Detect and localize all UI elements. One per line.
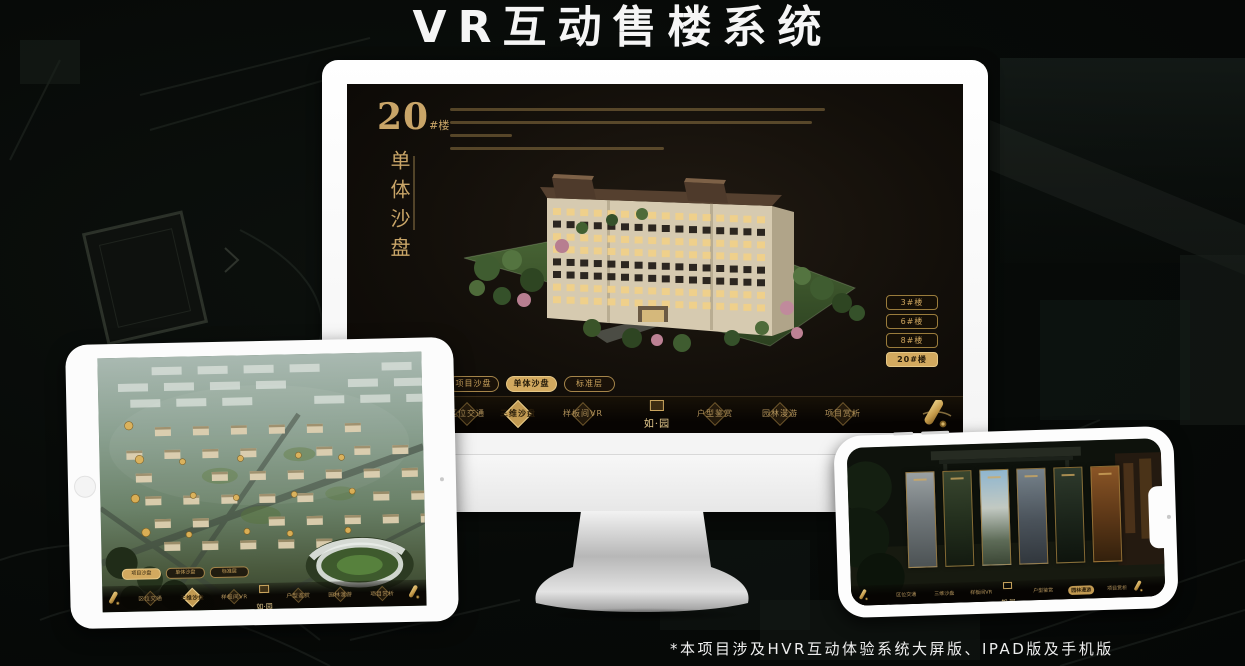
tab-single-sandbox[interactable]: 单体沙盘 (506, 376, 557, 392)
phone-nav-3d-sandbox[interactable]: 三维沙盘 (934, 590, 954, 598)
gallery-panel[interactable] (1053, 467, 1085, 564)
title-divider (413, 156, 415, 230)
tab-project-sandbox[interactable]: 项目沙盘 (448, 376, 499, 392)
scroll-menu-icon[interactable] (106, 588, 122, 610)
page-title: VR互动售楼系统 (0, 0, 1245, 56)
building-suffix: #楼 (429, 119, 449, 132)
gallery-panel[interactable] (979, 469, 1011, 566)
phone-nav-location[interactable]: 区位交通 (896, 591, 916, 599)
tablet: 项目沙盘 单体沙盘 标准层 区位交通 三维沙盘 样板间VR 如·园 户型鉴赏 园… (65, 337, 459, 629)
panel-label-marks (1062, 474, 1075, 476)
tablet-tab-single-sandbox[interactable]: 单体沙盘 (166, 567, 205, 579)
panel-label-marks (914, 478, 927, 480)
panel-label-marks (1025, 475, 1038, 477)
project-logo: 如·园 (1001, 582, 1016, 606)
phone: 区位交通 三维沙盘 样板间VR 如·园 户型鉴赏 园林漫游 项目赏析 (833, 426, 1179, 619)
scroll-menu-icon[interactable] (1132, 578, 1146, 596)
nav-item-3d-sandbox[interactable]: 三维沙盘 (500, 408, 536, 419)
tablet-tab-project-sandbox[interactable]: 项目沙盘 (122, 568, 161, 580)
camera-icon (440, 477, 444, 481)
section-title-vertical: 单体沙盘 (385, 150, 414, 266)
nav-item-showroom-vr[interactable]: 样板间VR (563, 408, 603, 419)
project-logo: 如·园 (644, 400, 670, 431)
notch (1148, 486, 1165, 548)
scroll-menu-icon[interactable] (919, 400, 953, 430)
gallery-panel[interactable] (905, 471, 937, 568)
gallery-panel[interactable] (1016, 468, 1048, 565)
intro-text-blurred (450, 108, 830, 160)
stage: VR互动售楼系统 20#楼 单体沙盘 (0, 0, 1245, 666)
scroll-menu-icon[interactable] (406, 582, 422, 604)
phone-screen: 区位交通 三维沙盘 样板间VR 如·园 户型鉴赏 园林漫游 项目赏析 (847, 438, 1166, 606)
tablet-tab-standard-floor[interactable]: 标准层 (210, 566, 249, 578)
tablet-nav-unit-plans[interactable]: 户型鉴赏 (286, 591, 310, 600)
floor-button-3[interactable]: 3#楼 (886, 295, 938, 310)
seal-icon (1003, 582, 1012, 589)
nav-item-unit-plans[interactable]: 户型鉴赏 (697, 408, 733, 419)
phone-nav-showroom-vr[interactable]: 样板间VR (970, 588, 992, 596)
stand-shadow (545, 608, 745, 622)
seal-icon (259, 585, 269, 593)
seal-icon (650, 400, 664, 411)
phone-nav-garden-roam[interactable]: 园林漫游 (1068, 585, 1094, 595)
project-logo: 如·园 (256, 585, 273, 613)
tablet-nav-showroom-vr[interactable]: 样板间VR (221, 592, 248, 601)
view-tab-group: 项目沙盘 单体沙盘 标准层 (448, 376, 615, 392)
tablet-nav-project-gallery[interactable]: 项目赏析 (370, 589, 394, 598)
phone-nav-project-gallery[interactable]: 项目赏析 (1107, 584, 1127, 592)
building-model[interactable] (442, 168, 882, 358)
scroll-menu-icon[interactable] (857, 586, 871, 604)
footnote: *本项目涉及HVR互动体验系统大屏版、IPAD版及手机版 (670, 638, 1114, 659)
tablet-screen: 项目沙盘 单体沙盘 标准层 区位交通 三维沙盘 样板间VR 如·园 户型鉴赏 园… (97, 352, 426, 613)
tablet-nav-3d-sandbox[interactable]: 三维沙盘 (180, 593, 204, 602)
gallery-panel[interactable] (1090, 465, 1122, 562)
floor-button-group: 3#楼 6#楼 8#楼 20#楼 (886, 295, 938, 371)
gallery-panel[interactable] (942, 470, 974, 567)
tablet-nav-location[interactable]: 区位交通 (138, 594, 162, 603)
building-title: 20#楼 (377, 96, 449, 138)
volume-button (921, 431, 949, 435)
nav-item-project-gallery[interactable]: 项目赏析 (825, 408, 861, 419)
floor-button-20[interactable]: 20#楼 (886, 352, 938, 367)
building-number: 20 (377, 96, 429, 138)
tablet-nav-garden-roam[interactable]: 园林漫游 (328, 590, 352, 599)
panel-label-marks (988, 476, 1001, 478)
phone-nav-unit-plans[interactable]: 户型鉴赏 (1033, 587, 1053, 595)
tab-standard-floor[interactable]: 标准层 (564, 376, 615, 392)
volume-button (893, 432, 913, 436)
home-button[interactable] (74, 475, 96, 497)
panel-label-marks (951, 477, 964, 479)
camera-icon (1167, 515, 1171, 519)
floor-button-8[interactable]: 8#楼 (886, 333, 938, 348)
floor-button-6[interactable]: 6#楼 (886, 314, 938, 329)
monitor-stand (535, 511, 749, 613)
panorama-gallery (905, 465, 1122, 568)
tablet-navbar: 区位交通 三维沙盘 样板间VR 如·园 户型鉴赏 园林漫游 项目赏析 (102, 580, 426, 613)
nav-item-garden-roam[interactable]: 园林漫游 (762, 408, 798, 419)
panel-label-marks (1099, 473, 1112, 475)
